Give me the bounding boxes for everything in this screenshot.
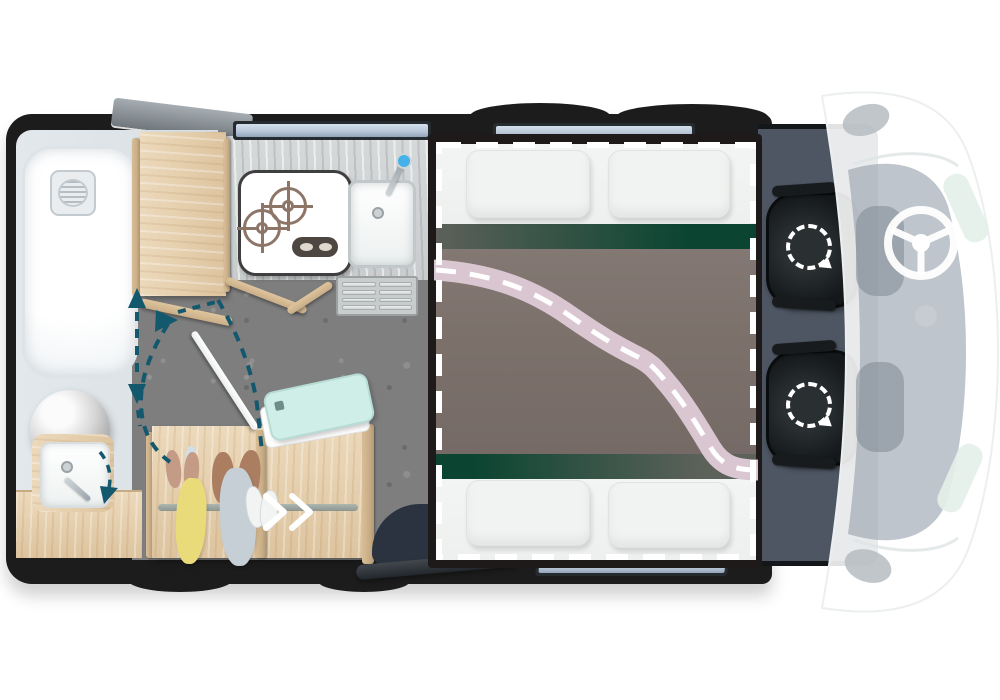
faucet-handle-dot [396,153,412,169]
drop-down-bed-outline [439,145,753,557]
washbasin [40,442,110,508]
sink-drain [372,207,384,219]
kitchen-sink [348,180,416,268]
headlight [933,440,986,516]
gear-knob [915,305,937,327]
headlight [939,170,992,246]
steering-wheel-icon [888,210,954,276]
floor-edge-bump [128,568,232,592]
motorhome-floorplan [0,0,1000,700]
hob-control-panel [292,237,338,257]
bed-annotation-overlay [434,140,758,562]
kitchen-window [233,121,431,140]
basin-drain [61,461,73,473]
cabinet-rail [224,138,230,292]
entry-step-grate [336,276,418,316]
partition-cabinet [140,132,226,296]
lounge-bed-area [434,140,758,562]
hanger-hooks-icon [262,492,332,532]
hob-burner-icon [243,209,281,247]
shower-drain [50,170,96,216]
bed-conversion-path [436,270,758,470]
cabinet-rail [132,138,140,296]
